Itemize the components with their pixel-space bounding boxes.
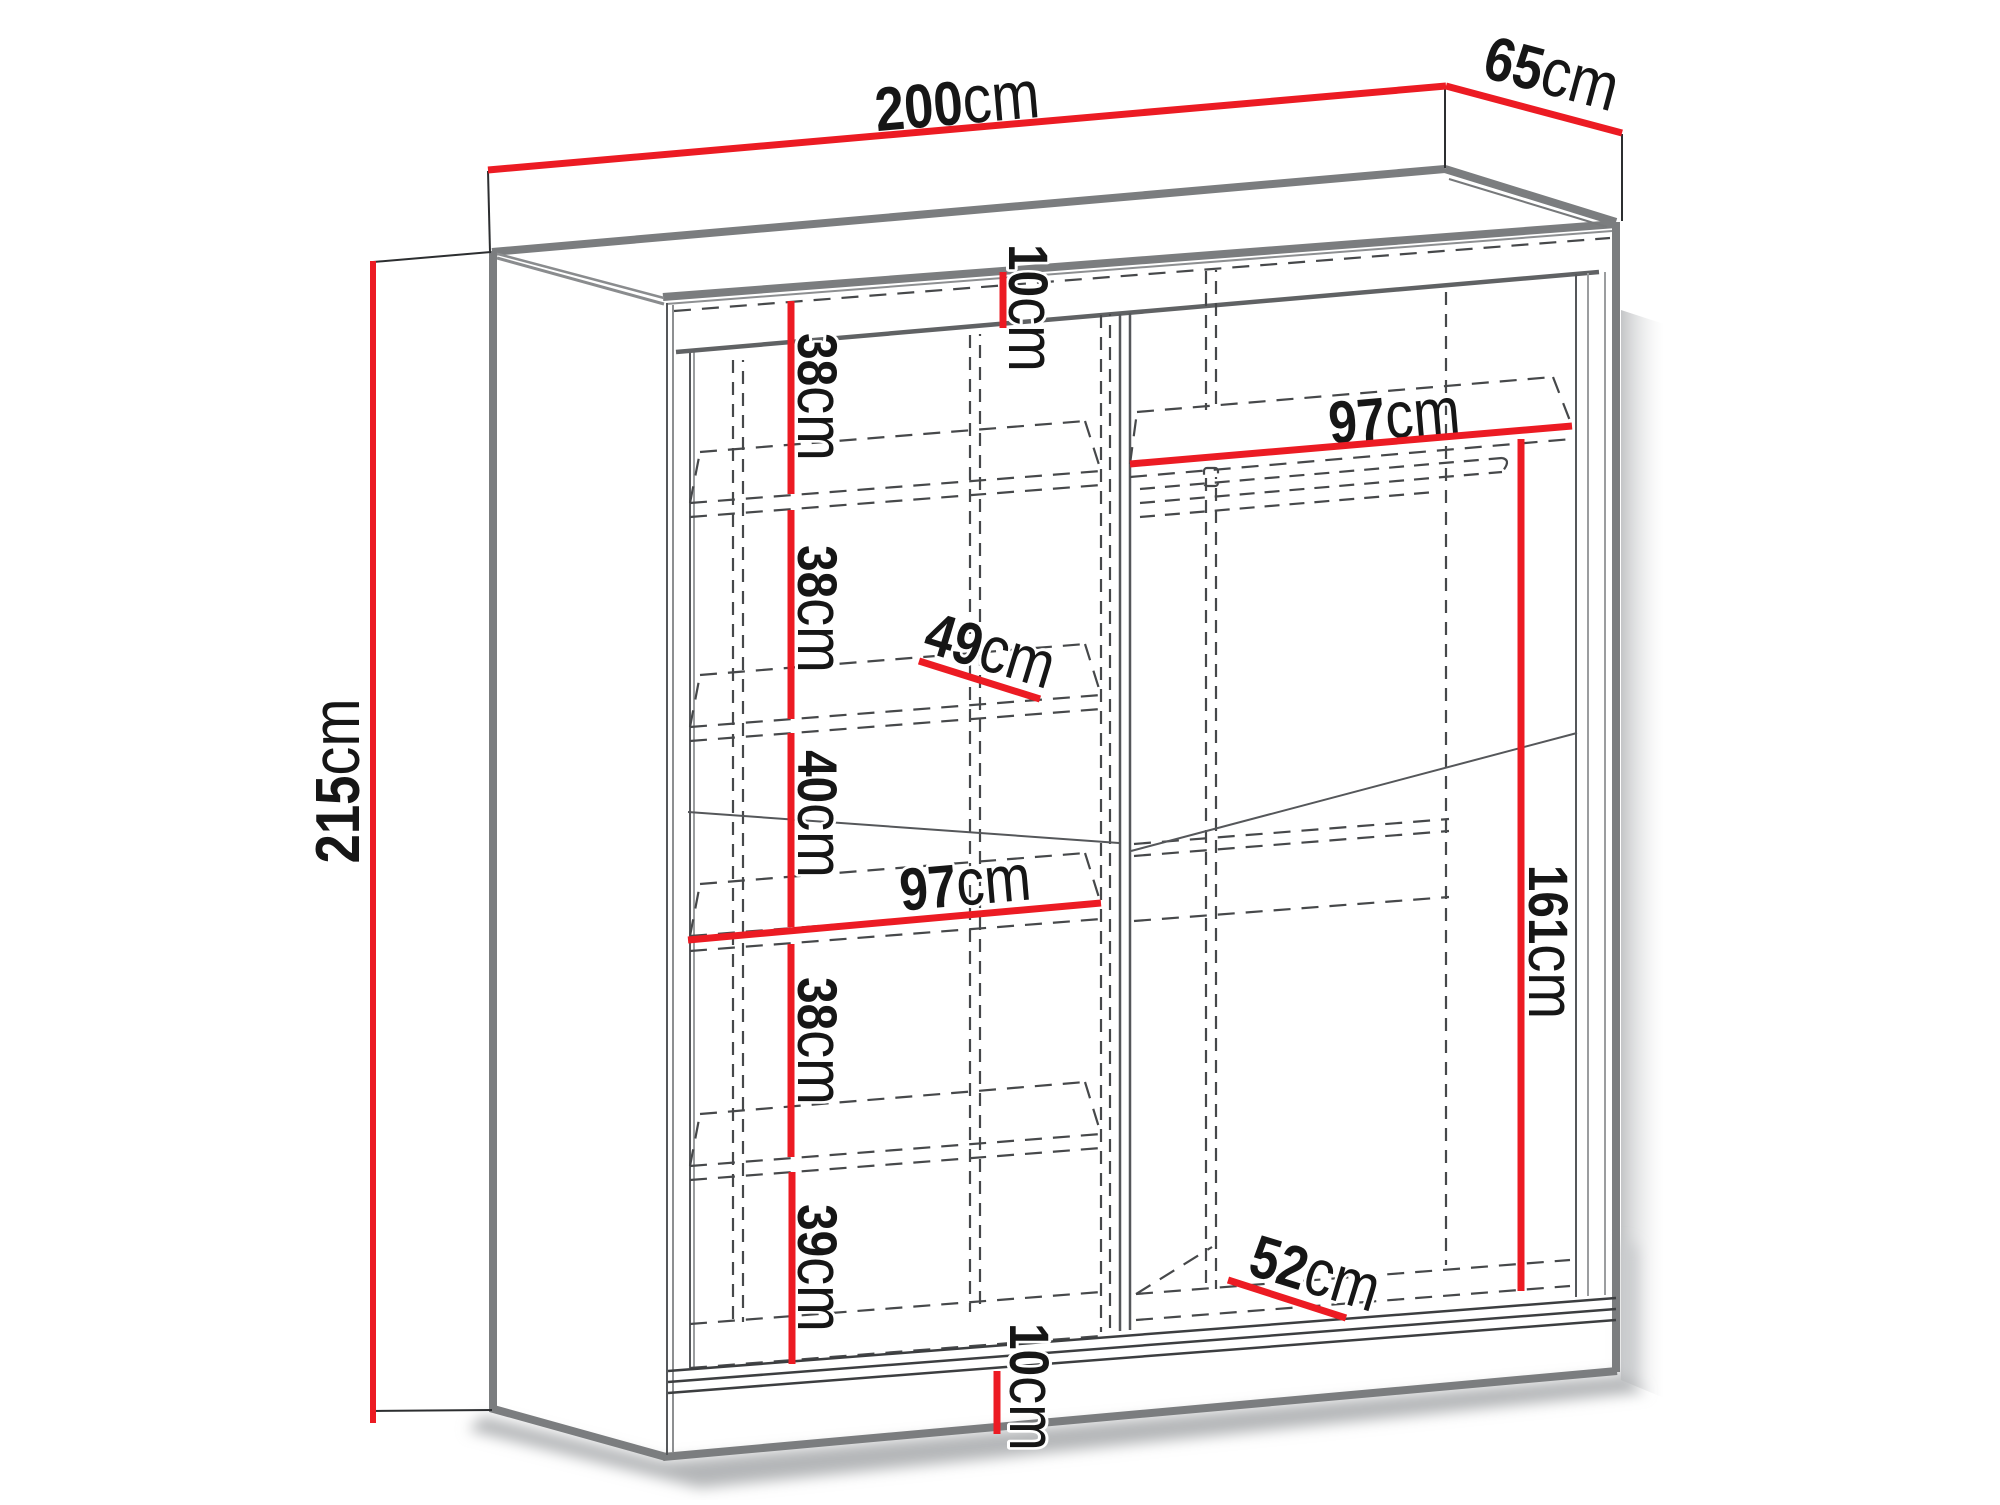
svg-text:38cm: 38cm bbox=[784, 977, 857, 1105]
svg-text:40cm: 40cm bbox=[784, 750, 857, 878]
svg-text:38cm: 38cm bbox=[784, 545, 857, 673]
svg-text:161cm: 161cm bbox=[1515, 865, 1588, 1019]
svg-text:38cm: 38cm bbox=[784, 333, 857, 461]
svg-text:10cm: 10cm bbox=[996, 1323, 1069, 1451]
svg-text:215cm: 215cm bbox=[299, 699, 374, 864]
